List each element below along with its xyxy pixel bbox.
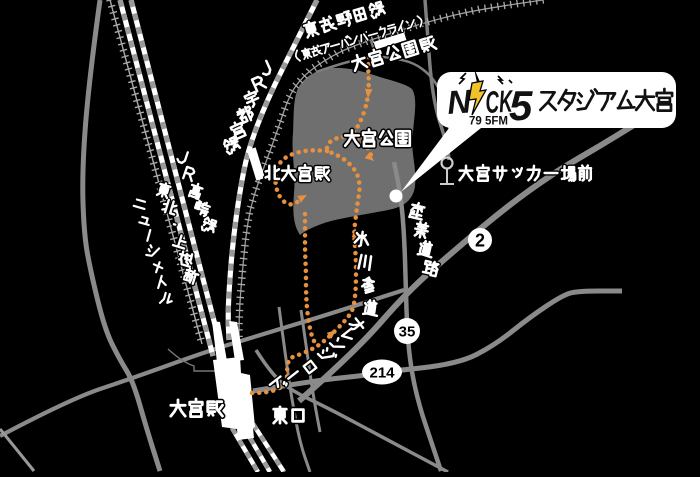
svg-text:2: 2 [475,231,485,251]
svg-text:214: 214 [369,365,395,382]
svg-text:79 5FM: 79 5FM [469,116,508,128]
svg-text:35: 35 [399,324,416,341]
svg-text:5: 5 [509,82,533,129]
